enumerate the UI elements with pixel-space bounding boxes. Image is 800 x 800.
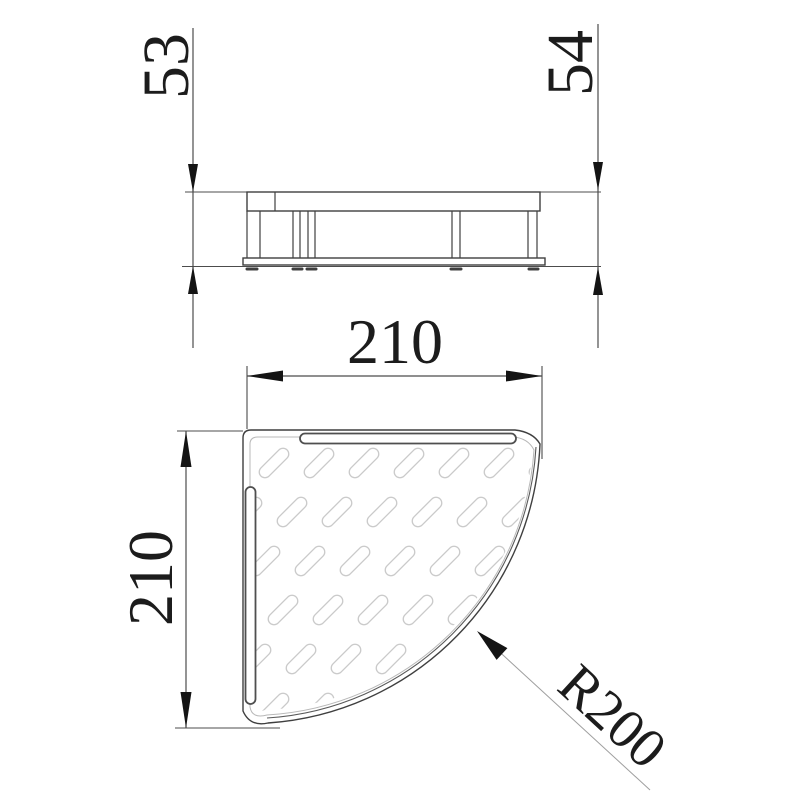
- drain-slot: [347, 691, 381, 725]
- drain-slot: [311, 593, 345, 627]
- drain-slot: [581, 593, 615, 627]
- dimension-radius-callout: R200: [477, 631, 678, 790]
- drain-slot: [284, 642, 318, 676]
- arrowhead-up: [188, 266, 198, 294]
- dim-label-54: 54: [534, 30, 607, 96]
- drain-slot: [473, 544, 507, 578]
- plan-view: 210 210 R200: [115, 306, 678, 790]
- drawing-page: 53 54 210: [0, 0, 800, 800]
- shelf-bottom-rail: [243, 258, 545, 265]
- dim-label-radius: R200: [546, 653, 677, 781]
- drain-slot: [320, 495, 354, 529]
- arrowhead-up: [593, 267, 603, 295]
- drain-slot: [428, 544, 462, 578]
- side-elevation-view: 53 54: [130, 24, 607, 348]
- drain-slot: [545, 495, 579, 529]
- arrowhead-up: [181, 431, 192, 467]
- drain-slot: [491, 593, 525, 627]
- drain-slot: [365, 495, 399, 529]
- arrowhead-down: [593, 162, 603, 190]
- dim-label-depth: 210: [115, 530, 186, 626]
- drain-slot: [392, 691, 426, 725]
- top-edge-slot: [300, 434, 516, 444]
- drain-slot: [302, 446, 336, 480]
- curved-edge-inner-line: [267, 447, 536, 718]
- drain-slot: [518, 544, 552, 578]
- drain-slot: [266, 593, 300, 627]
- dimension-side-left-height: 53: [130, 28, 203, 348]
- drain-slot: [212, 446, 246, 480]
- drain-slot: [293, 544, 327, 578]
- drain-slot: [302, 691, 336, 725]
- shelf-top-rail: [247, 192, 540, 211]
- arrowhead-right: [506, 371, 542, 382]
- drain-slot: [275, 495, 309, 529]
- dim-label-53: 53: [130, 33, 203, 99]
- drain-slot: [437, 446, 471, 480]
- drain-slot: [338, 544, 372, 578]
- support-posts: [247, 211, 537, 258]
- drain-slot: [185, 495, 219, 529]
- arrowhead-down: [188, 164, 198, 192]
- left-edge-slot: [246, 487, 256, 704]
- drain-slot: [536, 593, 570, 627]
- drain-slot: [401, 593, 435, 627]
- drain-slot: [257, 446, 291, 480]
- drain-slot: [482, 446, 516, 480]
- drain-slot: [392, 446, 426, 480]
- drain-slot: [410, 495, 444, 529]
- drain-slot: [329, 642, 363, 676]
- drain-slot: [563, 544, 597, 578]
- drain-slot: [437, 691, 471, 725]
- drain-slot: [257, 691, 291, 725]
- drain-slot: [356, 593, 390, 627]
- dim-label-width: 210: [347, 306, 443, 377]
- drain-slot: [509, 642, 543, 676]
- drain-slot: [383, 544, 417, 578]
- drain-slot: [527, 446, 561, 480]
- drain-slot: [455, 495, 489, 529]
- drain-slot: [482, 691, 516, 725]
- arrowhead-down: [181, 692, 192, 728]
- drain-slot: [347, 446, 381, 480]
- dimension-side-right-height: 54: [534, 24, 607, 348]
- arrowhead-left: [247, 371, 283, 382]
- corner-shelf-drawing: 53 54 210: [0, 0, 800, 800]
- drain-slot: [203, 544, 237, 578]
